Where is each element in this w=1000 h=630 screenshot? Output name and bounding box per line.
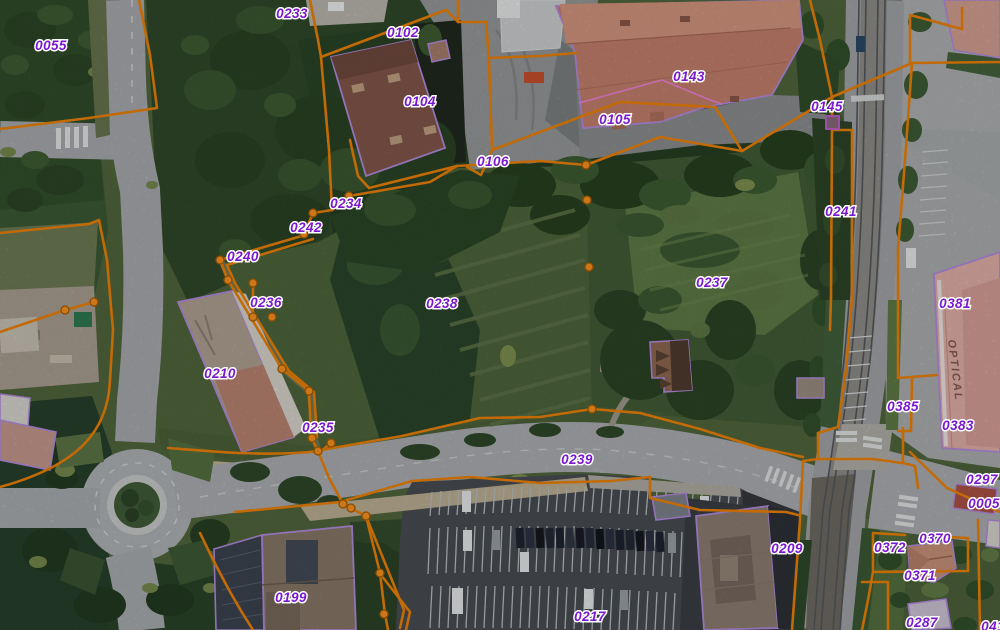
svg-text:0370: 0370 bbox=[919, 531, 951, 546]
svg-text:0055: 0055 bbox=[35, 38, 67, 53]
svg-text:0104: 0104 bbox=[404, 94, 436, 109]
svg-text:0234: 0234 bbox=[330, 196, 362, 211]
svg-text:0239: 0239 bbox=[561, 452, 593, 467]
svg-text:0217: 0217 bbox=[574, 609, 607, 624]
svg-text:0210: 0210 bbox=[204, 366, 236, 381]
svg-text:0381: 0381 bbox=[939, 296, 971, 311]
svg-text:0102: 0102 bbox=[387, 25, 419, 40]
svg-text:0237: 0237 bbox=[696, 275, 729, 290]
svg-text:0236: 0236 bbox=[250, 295, 282, 310]
svg-text:0235: 0235 bbox=[302, 420, 334, 435]
svg-text:0199: 0199 bbox=[275, 590, 307, 605]
svg-text:0287: 0287 bbox=[906, 615, 939, 630]
svg-text:0371: 0371 bbox=[904, 568, 936, 583]
svg-text:0242: 0242 bbox=[290, 220, 322, 235]
svg-text:0005: 0005 bbox=[968, 496, 1000, 511]
svg-text:0297: 0297 bbox=[966, 472, 999, 487]
svg-text:0209: 0209 bbox=[771, 541, 803, 556]
svg-text:0233: 0233 bbox=[276, 6, 308, 21]
svg-text:0385: 0385 bbox=[887, 399, 919, 414]
svg-text:0145: 0145 bbox=[811, 99, 843, 114]
svg-text:0105: 0105 bbox=[599, 112, 631, 127]
svg-text:0238: 0238 bbox=[426, 296, 458, 311]
svg-text:0383: 0383 bbox=[942, 418, 974, 433]
svg-text:0106: 0106 bbox=[477, 154, 509, 169]
svg-text:0240: 0240 bbox=[227, 249, 259, 264]
svg-text:0372: 0372 bbox=[874, 540, 906, 555]
svg-text:0241: 0241 bbox=[825, 204, 857, 219]
svg-text:0143: 0143 bbox=[673, 69, 705, 84]
svg-text:0415: 0415 bbox=[981, 619, 1000, 630]
